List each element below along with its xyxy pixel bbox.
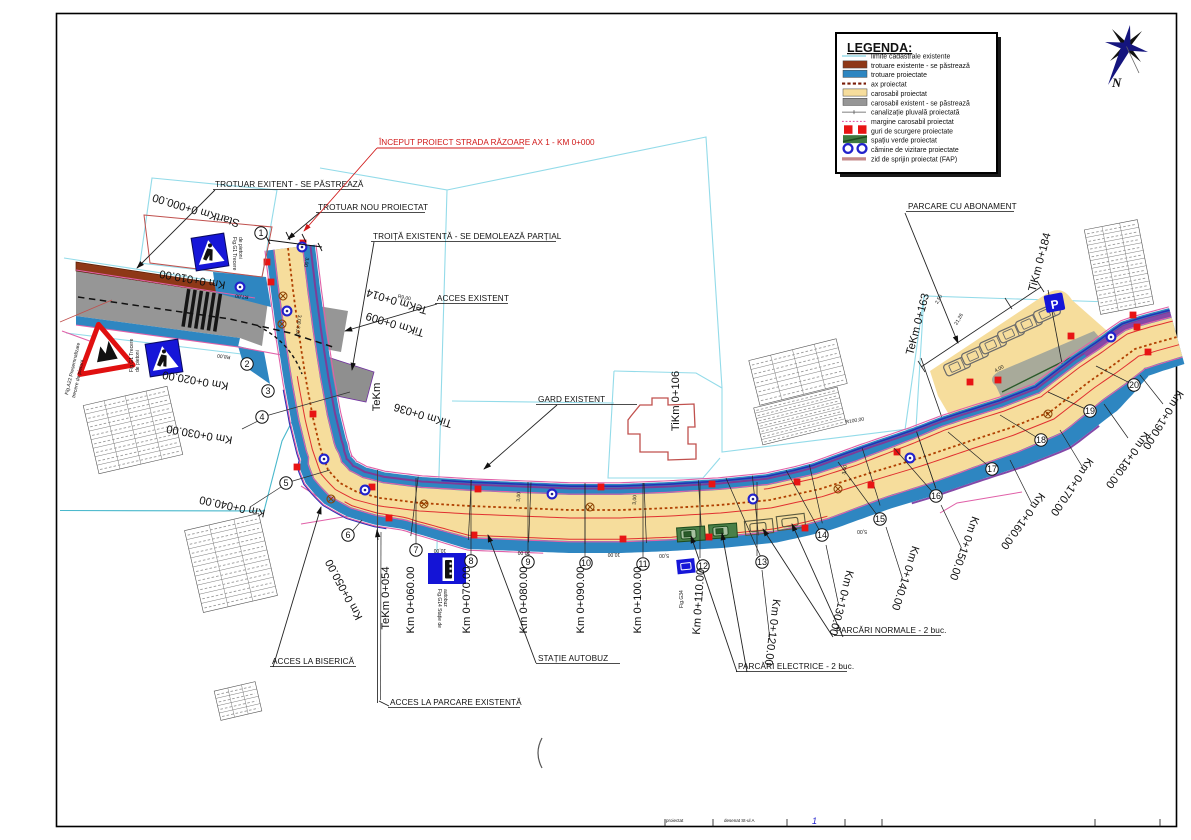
svg-text:Km 0+080.00: Km 0+080.00 (518, 567, 530, 634)
svg-text:STAȚIE AUTOBUZ: STAȚIE AUTOBUZ (538, 654, 608, 663)
svg-text:2: 2 (244, 359, 249, 369)
svg-text:Km 0+090.00: Km 0+090.00 (575, 567, 587, 634)
svg-text:13: 13 (757, 557, 767, 567)
svg-text:17: 17 (987, 464, 997, 474)
svg-text:proiectat: proiectat (666, 818, 684, 823)
svg-text:20,00: 20,00 (518, 549, 531, 555)
svg-text:ÎNCEPUT PROIECT STRADA RĂZOARE: ÎNCEPUT PROIECT STRADA RĂZOARE AX 1 - KM… (378, 137, 595, 147)
svg-text:PARCĂRI ELECTRICE - 2 buc.: PARCĂRI ELECTRICE - 2 buc. (738, 661, 854, 671)
svg-text:ACCES LA PARCARE EXISTENTĂ: ACCES LA PARCARE EXISTENTĂ (390, 697, 522, 707)
svg-text:ACCES EXISTENT: ACCES EXISTENT (437, 294, 509, 303)
svg-text:6: 6 (345, 530, 350, 540)
svg-text:ax proiectat: ax proiectat (871, 82, 907, 89)
svg-text:R7,00: R7,00 (235, 292, 249, 299)
svg-text:spațiu verde proiectat: spațiu verde proiectat (871, 138, 937, 145)
svg-text:14: 14 (817, 530, 827, 540)
svg-text:Km 0+070.00: Km 0+070.00 (461, 567, 473, 634)
svg-text:PARCARE CU ABONAMENT: PARCARE CU ABONAMENT (908, 202, 1017, 211)
svg-text:3,00: 3,00 (516, 492, 523, 502)
svg-text:10,00: 10,00 (434, 547, 447, 553)
svg-text:desenat St-ul A: desenat St-ul A (724, 818, 755, 823)
svg-text:3,00: 3,00 (632, 495, 639, 505)
svg-text:N: N (1111, 75, 1122, 90)
svg-text:carosabil existent - se păstre: carosabil existent - se păstrează (871, 100, 970, 107)
svg-text:1: 1 (258, 228, 263, 238)
svg-text:de pietoni: de pietoni (237, 237, 243, 259)
svg-text:TiKm 0+106: TiKm 0+106 (670, 371, 682, 431)
svg-text:carosabil proiectat: carosabil proiectat (871, 91, 927, 98)
svg-text:guri de scurgere proiectate: guri de scurgere proiectate (871, 128, 953, 135)
svg-text:canalizație pluvală proiectată: canalizație pluvală proiectată (871, 110, 960, 117)
svg-text:3: 3 (265, 386, 270, 396)
svg-text:Km 0+100.00: Km 0+100.00 (632, 567, 644, 634)
svg-text:TROIȚĂ EXISTENTĂ - SE DEMOLEAZ: TROIȚĂ EXISTENTĂ - SE DEMOLEAZĂ PARȚIAL (373, 231, 562, 241)
svg-text:5,00: 5,00 (659, 552, 669, 558)
svg-text:autobuz: autobuz (442, 589, 448, 607)
svg-text:20: 20 (1129, 380, 1139, 390)
svg-text:5: 5 (283, 478, 288, 488)
svg-text:limite cadastrale existente: limite cadastrale existente (871, 54, 950, 61)
svg-text:TeKm 0+054: TeKm 0+054 (380, 566, 392, 629)
svg-text:9: 9 (525, 557, 530, 567)
svg-text:Fig.G1 Trecere: Fig.G1 Trecere (231, 237, 237, 271)
svg-text:TROTUAR EXITENT - SE PĂSTREAZĂ: TROTUAR EXITENT - SE PĂSTREAZĂ (215, 179, 364, 189)
svg-text:16: 16 (931, 491, 941, 501)
svg-text:trotuare existente - se păstre: trotuare existente - se păstrează (871, 63, 970, 70)
svg-text:Km 0+060.00: Km 0+060.00 (405, 567, 417, 634)
svg-text:15: 15 (875, 514, 885, 524)
svg-text:ACCES LA BISERICĂ: ACCES LA BISERICĂ (272, 656, 355, 666)
svg-text:TeKm: TeKm (371, 383, 383, 412)
svg-text:zid de sprijin proiectat (FAP): zid de sprijin proiectat (FAP) (871, 156, 957, 163)
svg-text:1: 1 (812, 816, 817, 826)
svg-text:10,00: 10,00 (608, 551, 621, 557)
svg-text:Fig.G14 Stație de: Fig.G14 Stație de (436, 589, 442, 628)
svg-text:cămine de vizitare proiectate: cămine de vizitare proiectate (871, 147, 959, 154)
svg-text:19: 19 (1085, 406, 1095, 416)
svg-text:GARD EXISTENT: GARD EXISTENT (538, 395, 605, 404)
svg-text:18: 18 (1036, 435, 1046, 445)
svg-text:7: 7 (413, 545, 418, 555)
svg-text:trotuare proiectate: trotuare proiectate (871, 72, 927, 79)
svg-text:4: 4 (259, 412, 264, 422)
svg-text:de pietoni: de pietoni (135, 350, 141, 372)
svg-text:TROTUAR NOU PROIECTAT: TROTUAR NOU PROIECTAT (318, 203, 428, 212)
svg-text:margine carosabil proiectat: margine carosabil proiectat (871, 119, 954, 126)
svg-text:Fig.G34: Fig.G34 (679, 590, 685, 608)
svg-text:PARCĂRI NORMALE - 2 buc.: PARCĂRI NORMALE - 2 buc. (836, 625, 947, 635)
svg-text:5,00: 5,00 (857, 528, 867, 534)
svg-text:8: 8 (468, 556, 473, 566)
